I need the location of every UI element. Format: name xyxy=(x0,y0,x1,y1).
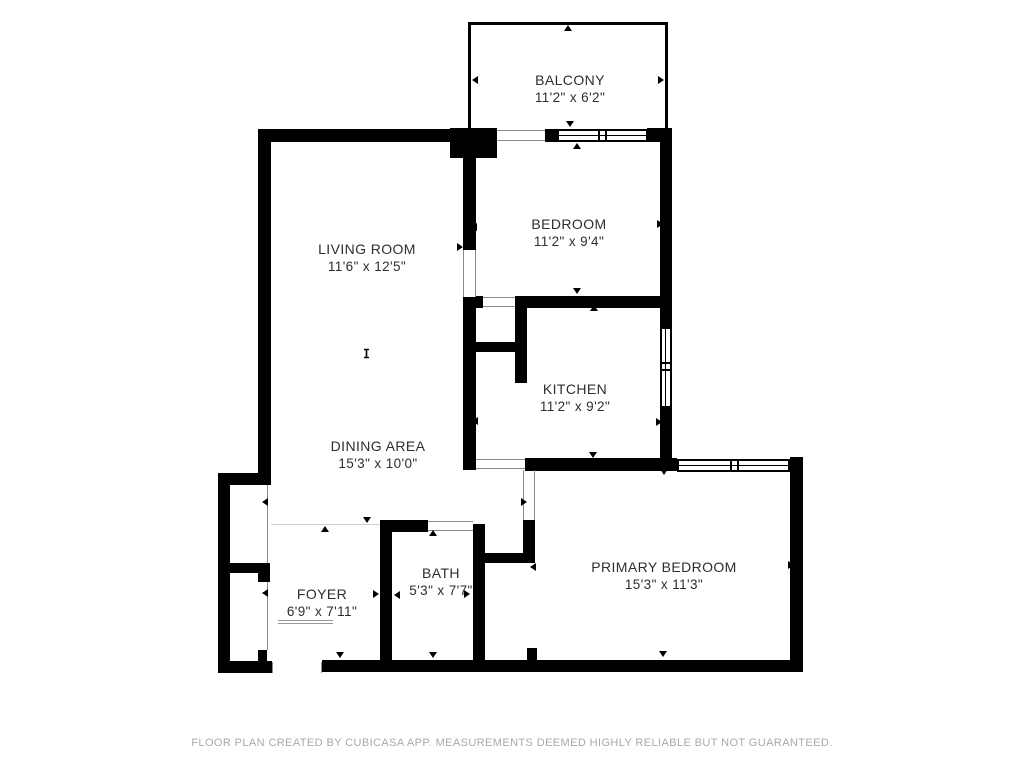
room-name: BATH xyxy=(361,564,521,582)
room-label-living-room: LIVING ROOM 11'6" x 12'5" xyxy=(267,240,467,276)
window-primary-mullion xyxy=(679,465,788,466)
room-dimensions: 15'3" x 11'3" xyxy=(544,576,784,594)
opening-kitchen-entry xyxy=(476,459,525,460)
wall-nook-divider-cap xyxy=(258,563,270,582)
opening-top-wall xyxy=(497,140,545,141)
opening-primary-door xyxy=(523,470,524,520)
room-dimensions: 11'2" x 6'2" xyxy=(470,89,670,107)
wall-primary-bottom-stub xyxy=(527,648,537,661)
opening-foyer-closet-upper xyxy=(267,485,268,563)
arrow-marker-icon xyxy=(573,143,581,149)
room-dimensions: 11'2" x 9'4" xyxy=(469,233,669,251)
room-name: PRIMARY BEDROOM xyxy=(544,558,784,576)
room-label-kitchen: KITCHEN 11'2" x 9'2" xyxy=(475,380,675,416)
wall-closet-vertical xyxy=(515,296,527,383)
floor-plan: BALCONY 11'2" x 6'2" BEDROOM 11'2" x 9'4… xyxy=(0,0,1024,768)
room-dimensions: 11'2" x 9'2" xyxy=(475,398,675,416)
room-name: DINING AREA xyxy=(278,437,478,455)
opening-entry-door xyxy=(321,662,322,673)
arrow-marker-icon xyxy=(566,121,574,127)
entry-door-leaf xyxy=(278,623,333,624)
wall-living-left xyxy=(258,129,271,485)
room-name: LIVING ROOM xyxy=(267,240,467,258)
extent-marker-icon xyxy=(362,348,371,359)
arrow-marker-icon xyxy=(429,652,437,658)
window-kitchen-divider xyxy=(661,369,671,371)
room-dimensions: 6'9" x 7'11" xyxy=(222,603,422,621)
wall-corner-column xyxy=(450,128,497,158)
opening-top-wall xyxy=(497,130,545,131)
wall-bottom-main xyxy=(322,660,803,672)
arrow-marker-icon xyxy=(429,530,437,536)
wall-window-cap-left xyxy=(545,129,557,142)
window-kitchen-divider xyxy=(661,362,671,364)
window-balcony-door-mullion xyxy=(559,135,646,136)
opening-entry-door xyxy=(272,662,273,673)
window-balcony-door-divider xyxy=(598,130,600,141)
arrow-marker-icon xyxy=(573,288,581,294)
arrow-marker-icon xyxy=(363,133,371,139)
window-primary-divider xyxy=(730,460,732,471)
room-label-primary-bedroom: PRIMARY BEDROOM 15'3" x 11'3" xyxy=(544,558,784,594)
room-name: KITCHEN xyxy=(475,380,675,398)
arrow-marker-icon xyxy=(363,517,371,523)
window-balcony-door-divider xyxy=(605,130,607,141)
window-primary-divider xyxy=(737,460,739,471)
boundary-dining-foyer xyxy=(271,524,380,525)
room-dimensions: 5'3" x 7'7" xyxy=(361,582,521,600)
arrow-marker-icon xyxy=(262,498,268,506)
arrow-marker-icon xyxy=(321,526,329,532)
wall-divider-stub xyxy=(476,296,483,308)
footer-disclaimer: FLOOR PLAN CREATED BY CUBICASA APP. MEAS… xyxy=(0,737,1024,749)
room-name: BALCONY xyxy=(470,71,670,89)
arrow-marker-icon xyxy=(590,305,598,311)
arrow-marker-icon xyxy=(521,498,527,506)
arrow-marker-icon xyxy=(530,563,536,571)
room-label-bedroom: BEDROOM 11'2" x 9'4" xyxy=(469,215,669,251)
room-dimensions: 15'3" x 10'0" xyxy=(278,455,478,473)
arrow-marker-icon xyxy=(589,452,597,458)
wall-kitchen-bottom xyxy=(525,458,677,471)
opening-kitchen-entry xyxy=(476,468,525,469)
arrow-marker-icon xyxy=(656,418,662,426)
room-label-bath: BATH 5'3" x 7'7" xyxy=(361,564,521,600)
arrow-marker-icon xyxy=(336,652,344,658)
opening-bath-door xyxy=(428,521,473,522)
wall-nook-bottom-stub xyxy=(258,650,267,662)
opening-bedroom-closet xyxy=(483,297,515,298)
wall-nook-left xyxy=(218,473,230,673)
arrow-marker-icon xyxy=(659,651,667,657)
opening-bedroom-closet xyxy=(483,306,515,307)
room-label-balcony: BALCONY 11'2" x 6'2" xyxy=(470,71,670,107)
opening-primary-door xyxy=(534,470,535,520)
arrow-marker-icon xyxy=(660,469,668,475)
wall-nook-divider xyxy=(229,563,258,573)
room-name: BEDROOM xyxy=(469,215,669,233)
wall-bath-top xyxy=(380,520,428,532)
room-dimensions: 11'6" x 12'5" xyxy=(267,258,467,276)
arrow-marker-icon xyxy=(472,417,478,425)
arrow-marker-icon xyxy=(788,561,794,569)
arrow-marker-icon xyxy=(564,25,572,31)
wall-living-top xyxy=(258,129,450,142)
room-label-dining-area: DINING AREA 15'3" x 10'0" xyxy=(278,437,478,473)
wall-nook-top xyxy=(218,473,270,485)
opening-bedroom-door xyxy=(475,250,476,297)
wall-closet-bottom xyxy=(475,342,515,352)
wall-hallcloset-bottom xyxy=(485,553,535,563)
